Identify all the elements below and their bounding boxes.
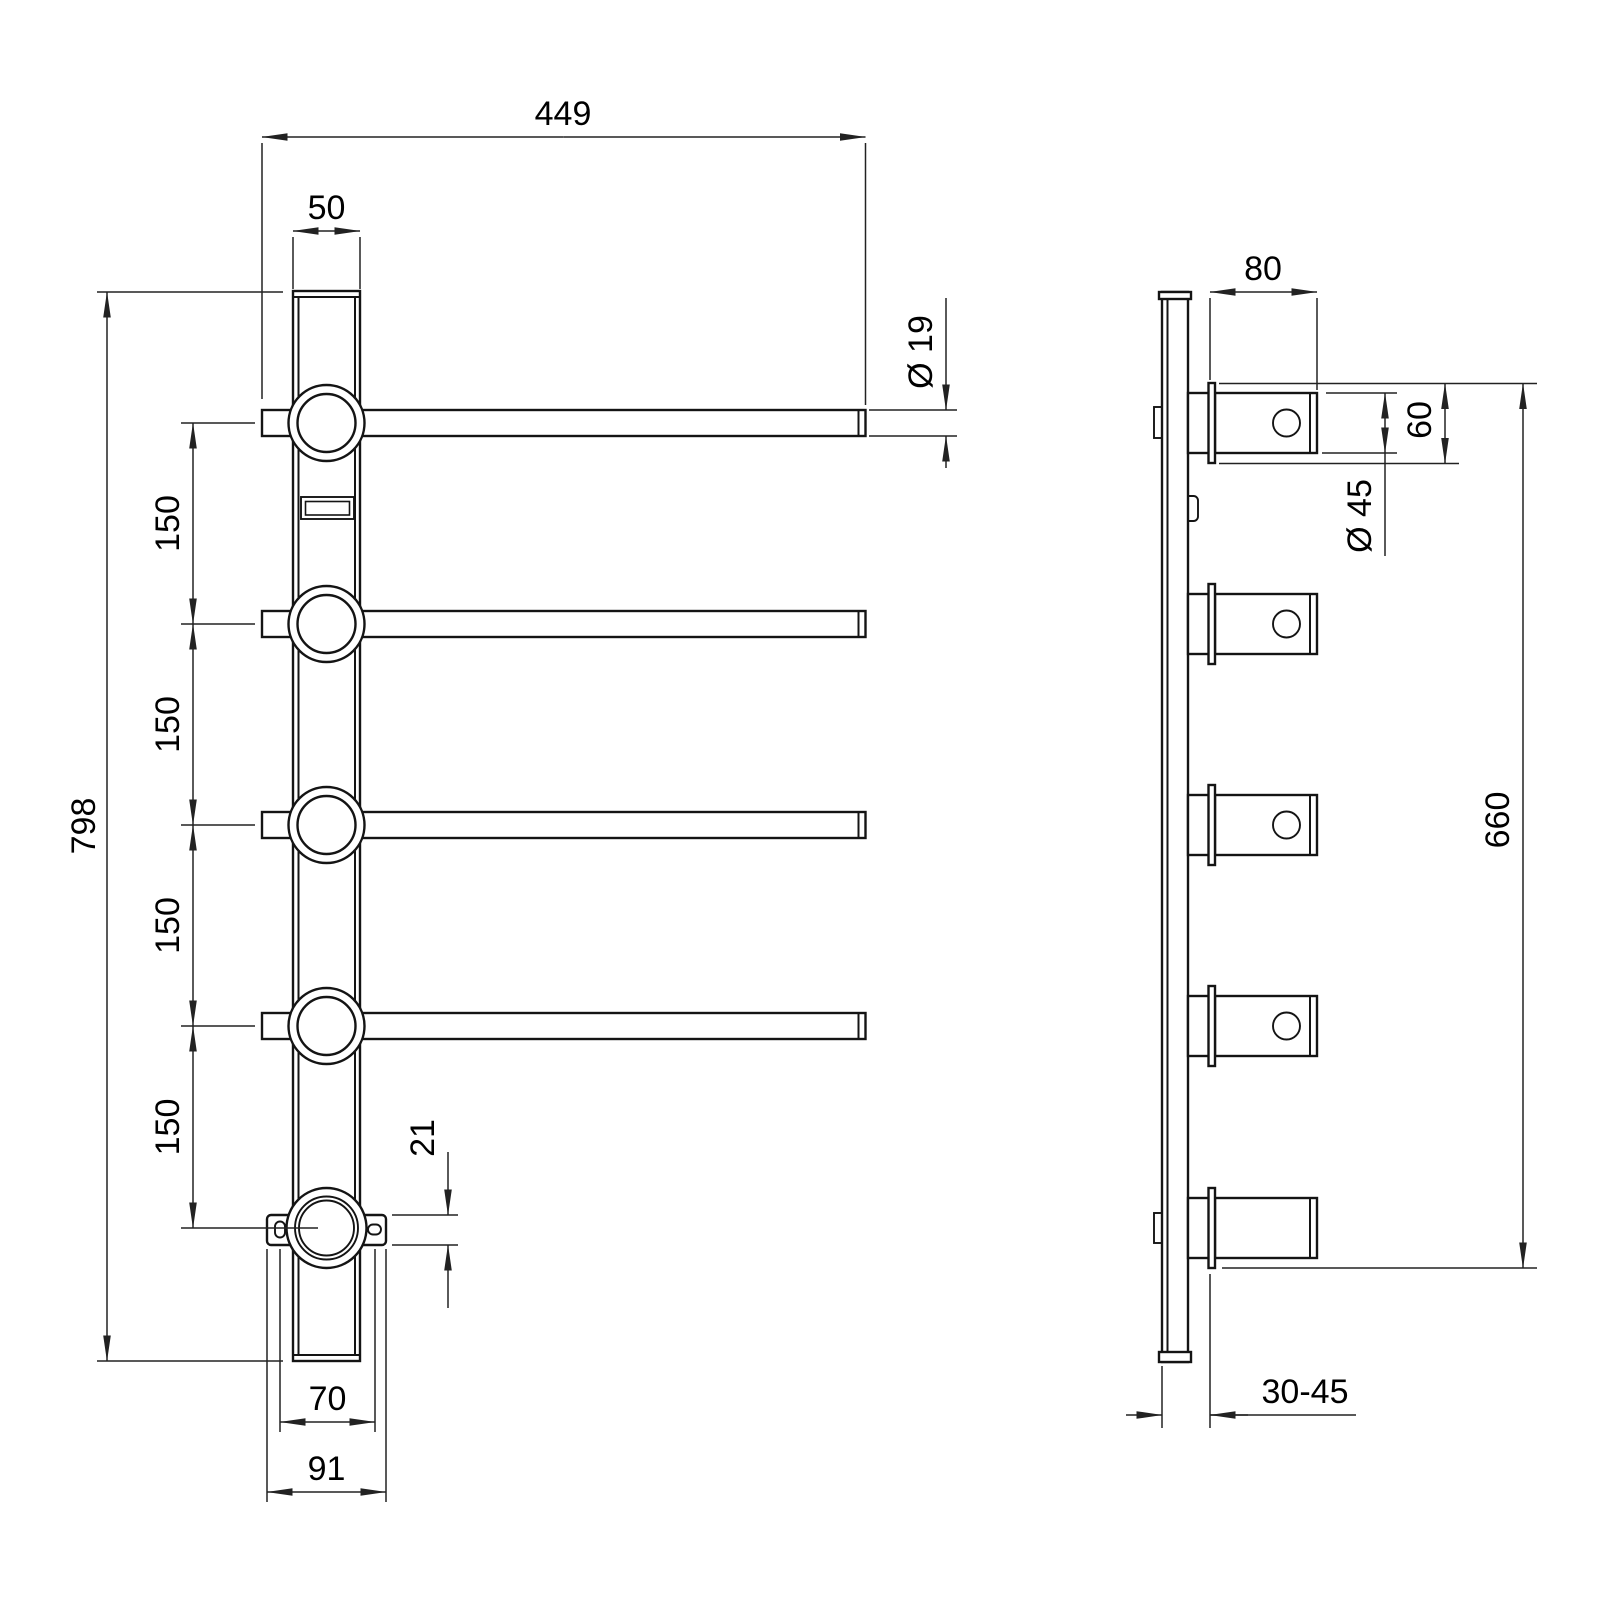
dim-label: 50 xyxy=(308,189,346,227)
dim-housing-diameter: Ø 45 xyxy=(1322,393,1397,556)
dim-label: 70 xyxy=(309,1380,347,1418)
dim-rail-width: 50 xyxy=(293,189,360,289)
dim-arm-diameter: Ø 19 xyxy=(869,298,957,468)
housing-body xyxy=(1215,795,1317,855)
housing-flange xyxy=(1209,986,1216,1066)
side-view xyxy=(1154,292,1317,1362)
bracket-housing-bottom xyxy=(1188,1188,1317,1268)
towel-arm-2 xyxy=(262,586,866,662)
towel-arm-4 xyxy=(262,988,866,1064)
housing-neck xyxy=(1188,1198,1210,1258)
dim-label: 150 xyxy=(149,495,187,552)
pivot-inner-ring xyxy=(298,997,356,1055)
housing-body xyxy=(1215,996,1317,1056)
dim-label: 150 xyxy=(149,1099,187,1156)
pivot-inner-ring xyxy=(298,595,356,653)
housing-flange xyxy=(1209,383,1216,463)
front-view xyxy=(262,291,866,1361)
dim-label: 150 xyxy=(149,897,187,954)
arm-housing-1 xyxy=(1188,383,1317,463)
housing-body xyxy=(1215,393,1317,453)
dim-label: 60 xyxy=(1401,401,1439,439)
housing-neck xyxy=(1188,996,1210,1056)
rail-plate-top-cap xyxy=(1159,292,1191,299)
dim-label: 21 xyxy=(404,1119,442,1157)
dim-label: 150 xyxy=(149,696,187,753)
dim-label: 80 xyxy=(1244,250,1282,288)
switch-window-inner xyxy=(306,502,350,516)
front-view-dimensions: 449 50 Ø 19 798 xyxy=(65,95,957,1502)
dim-arm-projection: 80 xyxy=(1210,250,1317,390)
housing-flange xyxy=(1209,785,1216,865)
bracket-screw-slot-left xyxy=(275,1222,285,1238)
arm-housing-2 xyxy=(1188,584,1317,664)
dim-label: 660 xyxy=(1479,792,1517,849)
housing-screw-hole xyxy=(1273,410,1300,437)
rail-plate xyxy=(1162,292,1188,1362)
housing-neck xyxy=(1188,795,1210,855)
dim-label: Ø 45 xyxy=(1341,479,1379,553)
switch-side-profile xyxy=(1188,496,1198,521)
housing-neck xyxy=(1188,393,1210,453)
arm-housing-4 xyxy=(1188,986,1317,1066)
rail-plate-bottom-cap xyxy=(1159,1352,1191,1362)
dim-label: Ø 19 xyxy=(902,315,940,389)
bracket-screw-slot-right xyxy=(368,1225,381,1235)
dim-bracket-thickness: 21 xyxy=(392,1119,458,1308)
dim-label: 91 xyxy=(308,1450,346,1488)
housing-flange xyxy=(1209,1188,1216,1268)
arm-housing-3 xyxy=(1188,785,1317,865)
drawing-page: 449 50 Ø 19 798 xyxy=(0,0,1600,1600)
towel-arm-1 xyxy=(262,385,866,461)
dim-label: 449 xyxy=(535,95,592,133)
pivot-inner-ring xyxy=(298,796,356,854)
towel-rail-technical-drawing: 449 50 Ø 19 798 xyxy=(0,0,1600,1600)
dim-overall-height: 798 xyxy=(65,292,283,1361)
housing-body xyxy=(1215,594,1317,654)
pivot-inner-ring xyxy=(298,394,356,452)
dim-label: 30-45 xyxy=(1262,1373,1349,1411)
housing-flange xyxy=(1209,584,1216,664)
dim-label: 798 xyxy=(65,798,103,855)
housing-screw-hole xyxy=(1273,1013,1300,1040)
housing-body xyxy=(1215,1198,1317,1258)
housing-neck xyxy=(1188,594,1210,654)
housing-screw-hole xyxy=(1273,812,1300,839)
housing-screw-hole xyxy=(1273,611,1300,638)
towel-arm-3 xyxy=(262,787,866,863)
